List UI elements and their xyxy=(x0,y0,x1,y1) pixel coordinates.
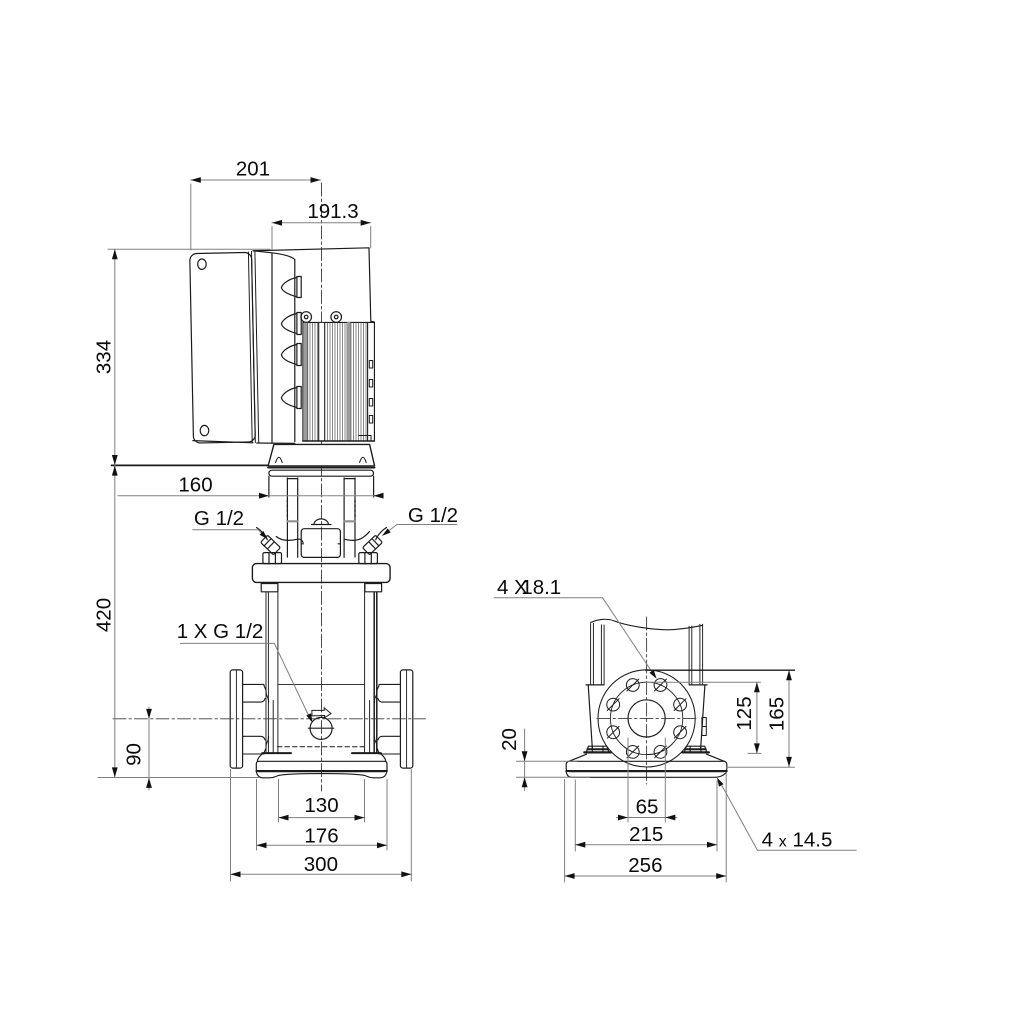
svg-text:65: 65 xyxy=(636,795,659,818)
svg-text:125: 125 xyxy=(733,696,756,730)
svg-text:215: 215 xyxy=(629,823,663,846)
svg-text:160: 160 xyxy=(178,474,212,497)
svg-text:176: 176 xyxy=(304,825,338,848)
svg-text:18.1: 18.1 xyxy=(521,576,561,599)
svg-text:191.3: 191.3 xyxy=(307,200,358,223)
svg-text:20: 20 xyxy=(498,728,521,751)
svg-text:G 1/2: G 1/2 xyxy=(408,504,458,527)
svg-text:1 X G 1/2: 1 X G 1/2 xyxy=(177,620,264,643)
svg-text:256: 256 xyxy=(628,854,662,877)
svg-text:300: 300 xyxy=(304,853,338,876)
svg-text:4 x 14.5: 4 x 14.5 xyxy=(762,828,833,851)
svg-text:90: 90 xyxy=(123,743,146,766)
svg-text:334: 334 xyxy=(93,340,116,374)
svg-text:130: 130 xyxy=(304,794,338,817)
svg-text:165: 165 xyxy=(766,697,789,731)
svg-text:G 1/2: G 1/2 xyxy=(194,507,244,530)
svg-text:420: 420 xyxy=(93,598,116,632)
svg-text:201: 201 xyxy=(236,158,270,181)
